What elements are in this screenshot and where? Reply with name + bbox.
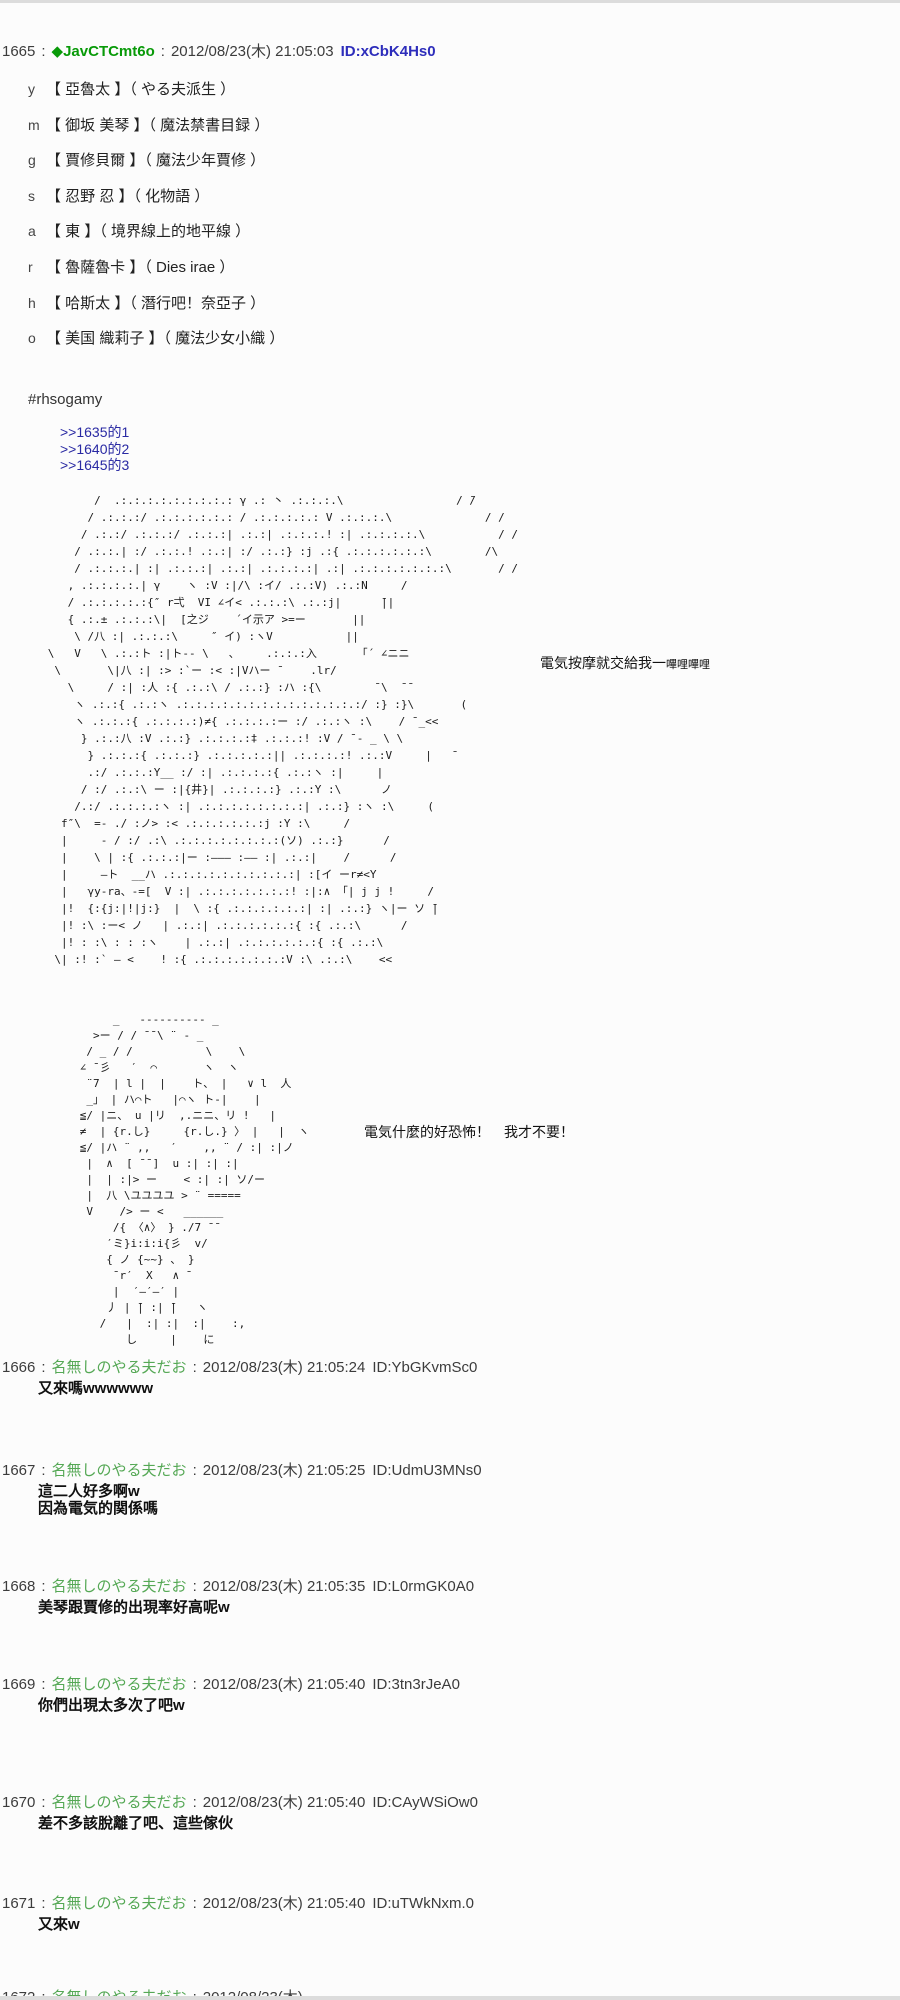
anchor-links: >>1635的1 >>1640的2 >>1645的3 <box>60 424 129 474</box>
header-separator: : <box>161 43 165 60</box>
roster-line: r【 魯薩魯卡 】（ Dies irae ） <box>28 250 284 286</box>
roster-line: g【 賈修貝爾 】（ 魔法少年賈修 ） <box>28 143 284 179</box>
ascii-art-scared-girl: _ ---------- _ >ー / / ̄ ̄ \ ¨ - _ / _ / … <box>40 1012 309 1348</box>
roster-entry: 【 亞魯太 】（ やる夫派生 ） <box>46 81 235 98</box>
post-id: ID:xCbK4Hs0 <box>341 43 436 60</box>
header-separator: : <box>41 43 45 60</box>
roster-entry: 【 御坂 美琴 】（ 魔法禁書目録 ） <box>46 117 269 134</box>
anchor-link-1640[interactable]: >>1640的2 <box>60 441 129 458</box>
post-date: 2012/08/23(木) 21:05:40 <box>203 1794 366 1811</box>
post-header: 1671:名無しのやる夫だお:2012/08/23(木) 21:05:40ID:… <box>0 1894 898 1913</box>
post-number: 1667 <box>2 1462 35 1479</box>
reply-post-1666: 1666:名無しのやる夫だお:2012/08/23(木) 21:05:24ID:… <box>0 1358 898 1397</box>
roster-line: y【 亞魯太 】（ やる夫派生 ） <box>28 72 284 108</box>
post-date: 2012/08/23(木) 21:05:24 <box>203 1359 366 1376</box>
post-number: 1668 <box>2 1578 35 1595</box>
post-number: 1671 <box>2 1895 35 1912</box>
header-separator: : <box>193 1676 197 1693</box>
roster-key: g <box>28 143 46 179</box>
roster-entry: 【 哈斯太 】（ 潛行吧！奈亞子 ） <box>46 295 265 312</box>
post-date: 2012/08/23(木) 21:05:40 <box>203 1895 366 1912</box>
post-header: 1668:名無しのやる夫だお:2012/08/23(木) 21:05:35ID:… <box>0 1577 898 1596</box>
header-separator: : <box>41 1676 45 1693</box>
post-header: 1667:名無しのやる夫だお:2012/08/23(木) 21:05:25ID:… <box>0 1461 898 1480</box>
poster-name: 名無しのやる夫だお <box>52 1578 187 1595</box>
roster-entry: 【 美国 織莉子 】（ 魔法少女小織 ） <box>46 330 284 347</box>
post-id: ID:YbGKvmSc0 <box>372 1359 477 1376</box>
post-id: ID:L0rmGK0A0 <box>372 1578 474 1595</box>
reply-post-1667: 1667:名無しのやる夫だお:2012/08/23(木) 21:05:25ID:… <box>0 1461 898 1517</box>
post-header: 1669:名無しのやる夫だお:2012/08/23(木) 21:05:40ID:… <box>0 1675 898 1694</box>
header-separator: : <box>41 1578 45 1595</box>
post-body: 這二人好多啊w 因為電気的関係嗎 <box>0 1483 898 1517</box>
roster-line: a【 東 】（ 境界線上的地平線 ） <box>28 214 284 250</box>
header-separator: : <box>41 1462 45 1479</box>
roster-key: h <box>28 286 46 322</box>
roster-key: y <box>28 72 46 108</box>
post-body: 美琴跟賈修的出現率好高呢w <box>0 1599 898 1616</box>
post-date: 2012/08/23(木) 21:05:40 <box>203 1676 366 1693</box>
thread-page: { "colors": { "trip_name": "#089a08", "a… <box>0 0 900 2000</box>
post-number: 1670 <box>2 1794 35 1811</box>
post-body-line: 又來嗎wwwwww <box>38 1380 898 1397</box>
roster-line: s【 忍野 忍 】（ 化物語 ） <box>28 179 284 215</box>
header-separator: : <box>41 1895 45 1912</box>
roster-entry: 【 賈修貝爾 】（ 魔法少年賈修 ） <box>46 152 265 169</box>
aa-dialogue-1-sfx: 嗶哩嗶哩 <box>666 659 710 671</box>
poster-name: 名無しのやる夫だお <box>52 1359 187 1376</box>
reply-post-1670: 1670:名無しのやる夫だお:2012/08/23(木) 21:05:40ID:… <box>0 1793 898 1832</box>
post-date: 2012/08/23(木) 21:05:25 <box>203 1462 366 1479</box>
aa-dialogue-2: 電気什麼的好恐怖！ 我才不要！ <box>364 1122 574 1142</box>
post-id: ID:UdmU3MNs0 <box>372 1462 481 1479</box>
page-top-edge <box>0 0 900 3</box>
poster-name: 名無しのやる夫だお <box>52 1794 187 1811</box>
anchor-link-1645[interactable]: >>1645的3 <box>60 457 129 474</box>
header-separator: : <box>193 1794 197 1811</box>
post-number: 1669 <box>2 1676 35 1693</box>
post-body: 你們出現太多次了吧w <box>0 1697 898 1714</box>
page-bottom-edge <box>0 1996 900 2000</box>
roster-entry: 【 東 】（ 境界線上的地平線 ） <box>46 223 250 240</box>
post-body-line: 這二人好多啊w <box>38 1483 898 1500</box>
post-body-line: 你們出現太多次了吧w <box>38 1697 898 1714</box>
post-body-line: 美琴跟賈修的出現率好高呢w <box>38 1599 898 1616</box>
post-body: 又來嗎wwwwww <box>0 1380 898 1397</box>
post-header: 1665:◆JavCTCmt6o:2012/08/23(木) 21:05:03I… <box>0 42 436 61</box>
roster-line: h【 哈斯太 】（ 潛行吧！奈亞子 ） <box>28 286 284 322</box>
roster-key: m <box>28 108 46 144</box>
post-body-line: 因為電気的関係嗎 <box>38 1500 898 1517</box>
post-body-line: 差不多該脫離了吧、這些傢伙 <box>38 1815 898 1832</box>
roster-entry: 【 忍野 忍 】（ 化物語 ） <box>46 188 209 205</box>
post-id: ID:3tn3rJeA0 <box>372 1676 460 1693</box>
header-separator: : <box>193 1578 197 1595</box>
header-separator: : <box>193 1462 197 1479</box>
post-body: 差不多該脫離了吧、這些傢伙 <box>0 1815 898 1832</box>
anchor-link-1635[interactable]: >>1635的1 <box>60 424 129 441</box>
post-header: 1666:名無しのやる夫だお:2012/08/23(木) 21:05:24ID:… <box>0 1358 898 1377</box>
header-separator: : <box>41 1794 45 1811</box>
post-number: 1666 <box>2 1359 35 1376</box>
hashtag-label: #rhsogamy <box>28 391 102 408</box>
roster-key: a <box>28 214 46 250</box>
post-id: ID:uTWkNxm.0 <box>372 1895 474 1912</box>
aa-dialogue-1-text: 電気按摩就交給我一 <box>540 655 666 671</box>
post-number: 1665 <box>2 43 35 60</box>
post-header: 1670:名無しのやる夫だお:2012/08/23(木) 21:05:40ID:… <box>0 1793 898 1812</box>
post-id: ID:CAyWSiOw0 <box>372 1794 478 1811</box>
reply-post-1668: 1668:名無しのやる夫だお:2012/08/23(木) 21:05:35ID:… <box>0 1577 898 1616</box>
post-date: 2012/08/23(木) 21:05:03 <box>171 43 334 60</box>
poster-name: 名無しのやる夫だお <box>52 1462 187 1479</box>
post-body: 又來w <box>0 1916 898 1933</box>
reply-post-1671: 1671:名無しのやる夫だお:2012/08/23(木) 21:05:40ID:… <box>0 1894 898 1933</box>
roster-line: o【 美国 織莉子 】（ 魔法少女小織 ） <box>28 321 284 357</box>
roster-line: m【 御坂 美琴 】（ 魔法禁書目録 ） <box>28 108 284 144</box>
header-separator: : <box>41 1359 45 1376</box>
ascii-art-misaka: / .:.:.:.:.:.:.:.:.: γ .: 丶 .:.:.:.\ / ̄… <box>8 492 518 968</box>
roster-entry: 【 魯薩魯卡 】（ Dies irae ） <box>46 259 234 276</box>
header-separator: : <box>193 1895 197 1912</box>
post-date: 2012/08/23(木) 21:05:35 <box>203 1578 366 1595</box>
poster-name: 名無しのやる夫だお <box>52 1676 187 1693</box>
roster-key: r <box>28 250 46 286</box>
poster-name-tripcode: ◆JavCTCmt6o <box>52 43 155 60</box>
poster-name: 名無しのやる夫だお <box>52 1895 187 1912</box>
character-roster: y【 亞魯太 】（ やる夫派生 ） m【 御坂 美琴 】（ 魔法禁書目録 ） g… <box>28 72 284 357</box>
aa-dialogue-1: 電気按摩就交給我一嗶哩嗶哩 <box>540 653 710 673</box>
header-separator: : <box>193 1359 197 1376</box>
roster-key: s <box>28 179 46 215</box>
roster-key: o <box>28 321 46 357</box>
post-body-line: 又來w <box>38 1916 898 1933</box>
reply-post-1669: 1669:名無しのやる夫だお:2012/08/23(木) 21:05:40ID:… <box>0 1675 898 1714</box>
